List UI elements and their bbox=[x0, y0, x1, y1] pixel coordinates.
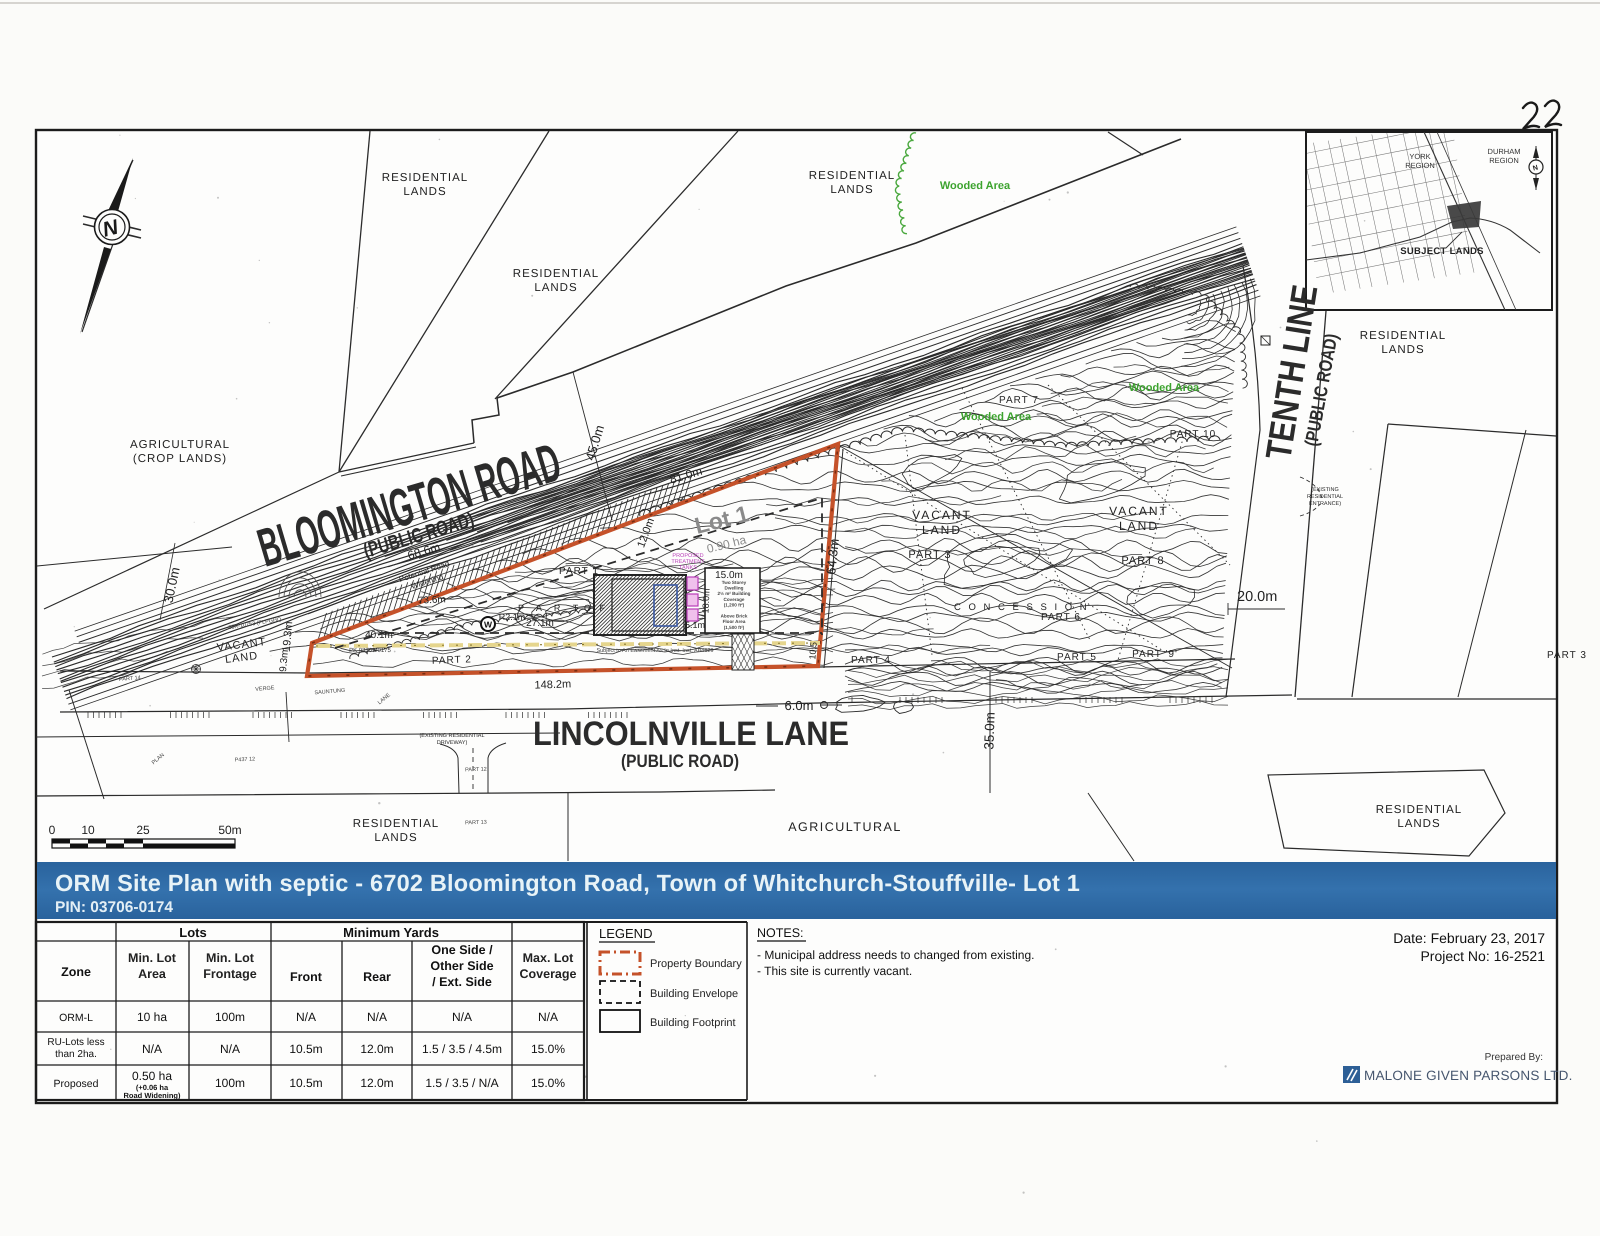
svg-text:10.5m: 10.5m bbox=[289, 1076, 322, 1090]
svg-text:PART 6: PART 6 bbox=[1041, 612, 1081, 623]
svg-text:148.2m: 148.2m bbox=[534, 678, 571, 691]
svg-text:PART 5: PART 5 bbox=[1057, 652, 1097, 663]
svg-text:Wooded Area: Wooded Area bbox=[940, 180, 1011, 192]
svg-text:TANKS: TANKS bbox=[679, 565, 697, 571]
svg-text:ENTRANCE): ENTRANCE) bbox=[1309, 501, 1341, 507]
svg-text:LANDS: LANDS bbox=[1381, 344, 1424, 356]
svg-text:Property Boundary: Property Boundary bbox=[650, 958, 742, 970]
svg-text:10: 10 bbox=[81, 823, 95, 837]
svg-text:18.0m: 18.0m bbox=[700, 588, 711, 614]
svg-text:Rear: Rear bbox=[363, 970, 391, 984]
svg-text:(PUBLIC ROAD): (PUBLIC ROAD) bbox=[621, 751, 739, 771]
svg-text:NOTES:: NOTES: bbox=[757, 926, 804, 940]
svg-text:Proposed: Proposed bbox=[54, 1078, 99, 1090]
svg-text:W: W bbox=[484, 620, 493, 630]
svg-text:100m: 100m bbox=[215, 1010, 245, 1024]
svg-text:(CROP LANDS): (CROP LANDS) bbox=[133, 453, 227, 465]
svg-text:15.0%: 15.0% bbox=[531, 1042, 565, 1056]
svg-text:O F: O F bbox=[584, 603, 608, 613]
svg-text:10.5m: 10.5m bbox=[289, 1042, 322, 1056]
svg-text:Project No: 16-2521: Project No: 16-2521 bbox=[1420, 948, 1545, 964]
svg-text:9.3m: 9.3m bbox=[278, 649, 291, 672]
svg-text:1.5 / 3.5 / 4.5m: 1.5 / 3.5 / 4.5m bbox=[422, 1042, 502, 1056]
svg-text:N/A: N/A bbox=[296, 1010, 316, 1024]
svg-text:LANDS: LANDS bbox=[403, 186, 446, 198]
svg-text:N/A: N/A bbox=[367, 1010, 387, 1024]
svg-text:27.1m: 27.1m bbox=[526, 618, 554, 629]
svg-text:LEGEND: LEGEND bbox=[599, 926, 652, 941]
svg-text:SUBJECT LANDS: SUBJECT LANDS bbox=[1400, 246, 1484, 257]
svg-text:N/A: N/A bbox=[538, 1010, 558, 1024]
svg-text:LAND: LAND bbox=[1119, 519, 1159, 533]
svg-text:- Municipal address needs to c: - Municipal address needs to changed fro… bbox=[757, 948, 1034, 962]
svg-text:PART 7: PART 7 bbox=[999, 395, 1039, 406]
svg-text:5.1m: 5.1m bbox=[685, 620, 705, 630]
svg-text:73.6m: 73.6m bbox=[418, 594, 446, 606]
svg-text:Lots: Lots bbox=[179, 925, 206, 940]
svg-text:1.5 / 3.5 / N/A: 1.5 / 3.5 / N/A bbox=[425, 1076, 498, 1090]
svg-text:Dwelling: Dwelling bbox=[725, 586, 744, 591]
svg-text:Date: February 23, 2017: Date: February 23, 2017 bbox=[1393, 930, 1545, 946]
svg-text:N/A: N/A bbox=[142, 1042, 162, 1056]
svg-text:Front: Front bbox=[290, 970, 323, 984]
svg-text:VACANT: VACANT bbox=[1109, 504, 1169, 518]
svg-text:12.0m: 12.0m bbox=[360, 1042, 393, 1056]
svg-text:P437 12: P437 12 bbox=[235, 756, 256, 763]
svg-text:40.1m: 40.1m bbox=[365, 630, 393, 641]
svg-text:Subject to An Easement As In I: Subject to An Easement As In Inst. Inst.… bbox=[596, 648, 713, 654]
svg-text:REGION: REGION bbox=[1489, 156, 1519, 165]
svg-text:12.0m: 12.0m bbox=[360, 1076, 393, 1090]
svg-text:PART 1: PART 1 bbox=[559, 566, 599, 577]
svg-text:PART '9': PART '9' bbox=[1132, 649, 1178, 660]
svg-text:RESIDENTIAL: RESIDENTIAL bbox=[1376, 804, 1462, 816]
svg-text:REGION: REGION bbox=[1405, 161, 1435, 170]
svg-text:Zone: Zone bbox=[61, 965, 91, 979]
svg-text:PART 12: PART 12 bbox=[465, 767, 487, 774]
svg-text:10.5: 10.5 bbox=[807, 642, 818, 660]
svg-text:RESIDENTIAL: RESIDENTIAL bbox=[382, 172, 468, 184]
svg-text:N/A: N/A bbox=[452, 1010, 472, 1024]
svg-text:15.0m: 15.0m bbox=[715, 570, 743, 581]
svg-text:/ Ext. Side: / Ext. Side bbox=[432, 975, 492, 989]
svg-text:Coverage: Coverage bbox=[724, 597, 745, 602]
svg-text:YORK: YORK bbox=[1409, 152, 1430, 161]
svg-text:PIN: 03706-0174: PIN: 03706-0174 bbox=[55, 899, 173, 916]
svg-text:- This site is currently vacan: - This site is currently vacant. bbox=[757, 964, 912, 978]
svg-text:Area: Area bbox=[138, 967, 167, 981]
svg-text:0: 0 bbox=[49, 823, 56, 837]
svg-text:0.50 ha: 0.50 ha bbox=[132, 1069, 172, 1083]
svg-text:MALONE GIVEN PARSONS LTD.: MALONE GIVEN PARSONS LTD. bbox=[1364, 1068, 1573, 1083]
svg-text:Wooded Area: Wooded Area bbox=[1129, 382, 1200, 394]
svg-text:Road Widening): Road Widening) bbox=[123, 1091, 181, 1100]
svg-text:Min. Lot: Min. Lot bbox=[206, 951, 255, 965]
svg-text:than 2ha.: than 2ha. bbox=[55, 1049, 97, 1060]
svg-text:Building Footprint: Building Footprint bbox=[650, 1017, 736, 1029]
svg-text:Minimum Yards: Minimum Yards bbox=[343, 925, 439, 940]
svg-text:DURHAM: DURHAM bbox=[1488, 147, 1521, 156]
svg-text:RESIDENTIAL: RESIDENTIAL bbox=[1307, 494, 1343, 500]
svg-text:Coverage: Coverage bbox=[520, 967, 577, 981]
svg-text:Wooded Area: Wooded Area bbox=[961, 411, 1032, 423]
svg-text:Frontage: Frontage bbox=[203, 967, 257, 981]
svg-text:LINCOLNVILLE LANE: LINCOLNVILLE LANE bbox=[533, 715, 849, 753]
svg-text:ORM-L: ORM-L bbox=[59, 1012, 93, 1024]
svg-text:PART 4: PART 4 bbox=[851, 655, 891, 666]
svg-text:Prepared By:: Prepared By: bbox=[1485, 1052, 1543, 1063]
svg-text:PART 3: PART 3 bbox=[908, 549, 951, 561]
svg-text:10 ha: 10 ha bbox=[137, 1010, 167, 1024]
svg-text:35.0m: 35.0m bbox=[981, 712, 997, 750]
svg-text:Max. Lot: Max. Lot bbox=[523, 951, 575, 965]
svg-text:(EXISTING: (EXISTING bbox=[1311, 487, 1339, 493]
svg-text:RESIDENTIAL: RESIDENTIAL bbox=[809, 170, 895, 182]
svg-text:VACANT: VACANT bbox=[912, 508, 972, 522]
svg-text:20.0m: 20.0m bbox=[1237, 589, 1277, 605]
svg-text:Other Side: Other Side bbox=[430, 959, 493, 973]
svg-text:Min. Lot: Min. Lot bbox=[128, 951, 177, 965]
svg-text:AGRICULTURAL: AGRICULTURAL bbox=[130, 439, 230, 451]
svg-text:LANDS: LANDS bbox=[374, 832, 417, 844]
svg-text:50m: 50m bbox=[218, 823, 241, 837]
svg-text:LANDS: LANDS bbox=[534, 282, 577, 294]
svg-text:One Side /: One Side / bbox=[431, 943, 493, 957]
svg-text:25: 25 bbox=[136, 823, 150, 837]
svg-text:RESIDENTIAL: RESIDENTIAL bbox=[513, 268, 599, 280]
svg-text:2½ m² Building: 2½ m² Building bbox=[718, 591, 751, 596]
svg-text:6.0m: 6.0m bbox=[785, 698, 814, 713]
svg-text:PART 8: PART 8 bbox=[1121, 555, 1164, 567]
svg-text:RU-Lots less: RU-Lots less bbox=[47, 1037, 104, 1048]
svg-text:AGRICULTURAL: AGRICULTURAL bbox=[788, 820, 902, 834]
svg-text:(EXISTING RESIDENTIAL: (EXISTING RESIDENTIAL bbox=[419, 733, 484, 739]
svg-text:Above Brick: Above Brick bbox=[721, 614, 748, 619]
svg-text:DRIVEWAY): DRIVEWAY) bbox=[437, 740, 468, 746]
svg-text:N/A: N/A bbox=[220, 1042, 240, 1056]
svg-text:100m: 100m bbox=[215, 1076, 245, 1090]
svg-text:Floor Area: Floor Area bbox=[723, 619, 746, 624]
svg-text:PART 13: PART 13 bbox=[465, 820, 487, 827]
svg-text:(1,200 ft²): (1,200 ft²) bbox=[724, 602, 745, 607]
svg-text:P A R T: P A R T bbox=[518, 603, 583, 613]
svg-text:ORM Site Plan with septic - 67: ORM Site Plan with septic - 6702 Bloomin… bbox=[55, 870, 1080, 896]
svg-text:RESIDENTIAL: RESIDENTIAL bbox=[353, 818, 439, 830]
svg-text:R2.1m: R2.1m bbox=[499, 612, 526, 622]
svg-text:RESIDENTIAL: RESIDENTIAL bbox=[1360, 330, 1446, 342]
svg-text:PART 2: PART 2 bbox=[432, 654, 472, 666]
svg-text:Building Envelope: Building Envelope bbox=[650, 988, 738, 1000]
svg-text:LAND: LAND bbox=[922, 523, 962, 537]
svg-text:15.0%: 15.0% bbox=[531, 1076, 565, 1090]
svg-text:PK 03709-0175: PK 03709-0175 bbox=[349, 647, 391, 654]
svg-text:(1,500 ft²): (1,500 ft²) bbox=[724, 625, 745, 630]
svg-text:PART 3: PART 3 bbox=[1547, 650, 1587, 661]
svg-text:C O N C E S S I O N: C O N C E S S I O N bbox=[954, 602, 1089, 613]
svg-text:PART 10: PART 10 bbox=[1170, 429, 1216, 440]
svg-text:LANDS: LANDS bbox=[830, 184, 873, 196]
svg-text:LANDS: LANDS bbox=[1397, 818, 1440, 830]
